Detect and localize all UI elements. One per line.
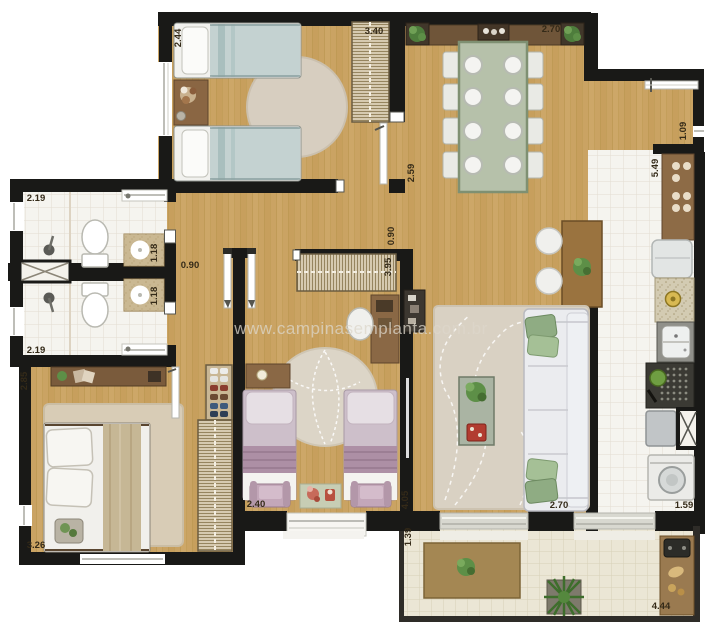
svg-text:2.40: 2.40 [247, 499, 266, 510]
svg-text:2.44: 2.44 [173, 28, 184, 47]
svg-text:1.59: 1.59 [675, 500, 694, 511]
svg-text:1.18: 1.18 [149, 244, 160, 263]
svg-text:3.40: 3.40 [365, 26, 384, 37]
svg-text:4.05: 4.05 [400, 490, 411, 509]
svg-text:www.campinasemplanta.com.br: www.campinasemplanta.com.br [233, 319, 487, 338]
svg-text:3.95: 3.95 [383, 257, 394, 276]
svg-text:2.70: 2.70 [550, 500, 569, 511]
svg-text:1.39: 1.39 [403, 528, 414, 547]
svg-text:2.70: 2.70 [542, 24, 561, 35]
svg-text:0.90: 0.90 [181, 260, 200, 271]
svg-text:5.49: 5.49 [650, 159, 661, 178]
svg-text:2.19: 2.19 [27, 193, 46, 204]
svg-text:2.59: 2.59 [406, 164, 417, 183]
svg-text:4.44: 4.44 [652, 601, 671, 612]
svg-text:2.85: 2.85 [19, 371, 30, 390]
svg-text:3.26: 3.26 [27, 540, 46, 551]
svg-text:1.18: 1.18 [149, 287, 160, 306]
svg-text:1.09: 1.09 [678, 122, 689, 141]
svg-text:2.19: 2.19 [27, 345, 46, 356]
svg-text:0.90: 0.90 [386, 227, 397, 246]
